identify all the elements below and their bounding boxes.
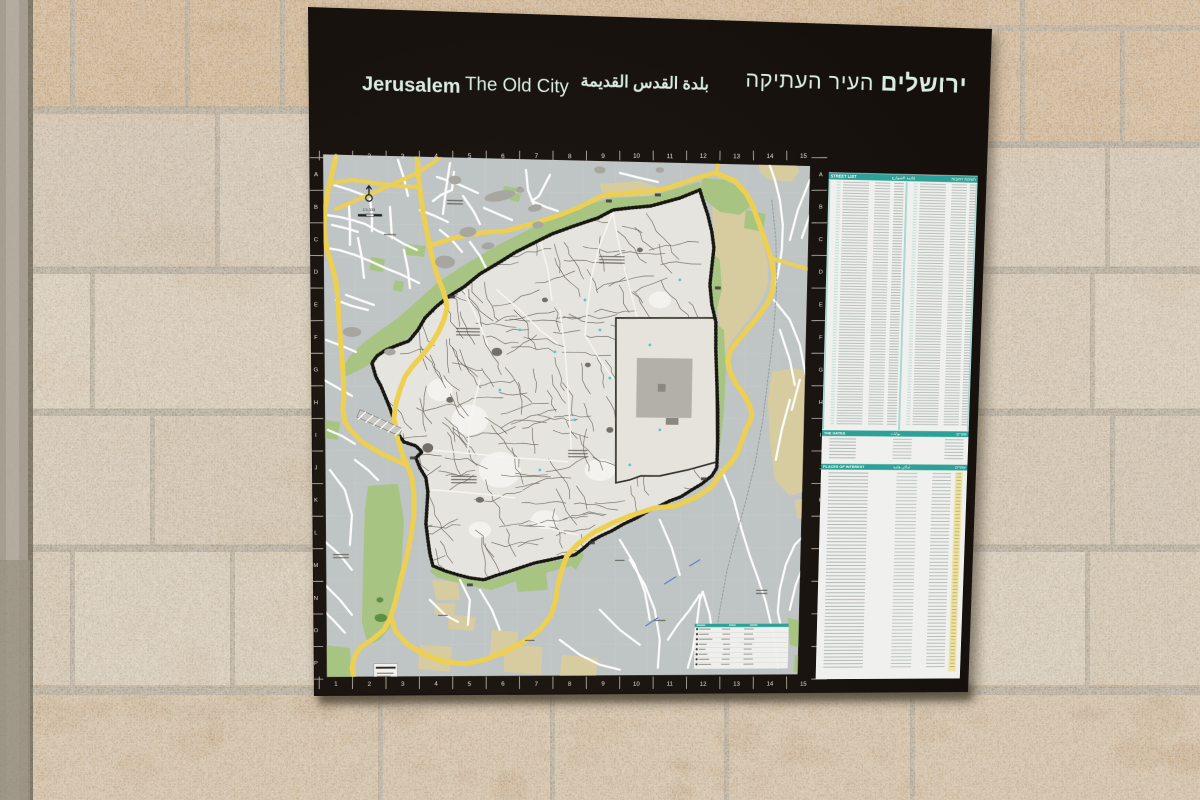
svg-text:1: 1 [334,153,338,160]
svg-text:F: F [819,334,823,341]
svg-text:D: D [314,269,319,276]
svg-text:أماكن هامة: أماكن هامة [893,464,910,470]
svg-text:11: 11 [667,681,674,687]
svg-text:14: 14 [766,153,773,160]
svg-text:15: 15 [800,153,807,160]
svg-text:PLACES OF INTEREST: PLACES OF INTEREST [823,464,865,469]
svg-text:3: 3 [401,153,405,160]
svg-text:5: 5 [468,153,472,160]
svg-text:2: 2 [368,153,372,160]
svg-text:4: 4 [434,681,438,687]
svg-text:14: 14 [766,681,773,687]
svg-text:12: 12 [700,153,707,160]
svg-text:6: 6 [501,681,505,687]
svg-text:E: E [314,302,318,309]
svg-text:6: 6 [501,153,505,160]
svg-text:10: 10 [633,153,640,160]
svg-text:אתרים: אתרים [955,465,966,470]
svg-text:C: C [314,236,319,243]
svg-text:G: G [819,367,824,373]
svg-text:STREET LIST: STREET LIST [831,174,857,179]
svg-text:1: 1 [334,681,338,687]
svg-text:3: 3 [401,681,405,687]
svg-text:B: B [819,204,823,211]
svg-text:N: N [314,595,318,601]
svg-text:M: M [313,562,318,568]
svg-text:9: 9 [601,153,605,160]
svg-text:7: 7 [534,681,538,687]
svg-text:قائمة الشوارع: قائمة الشوارع [892,175,916,180]
svg-text:13: 13 [733,153,740,160]
svg-text:12: 12 [700,681,707,687]
svg-text:11: 11 [667,153,674,160]
svg-text:שערים: שערים [956,432,966,437]
svg-text:13: 13 [733,681,740,687]
svg-text:C: C [819,237,824,244]
svg-text:F: F [314,334,318,341]
svg-text:7: 7 [534,153,538,160]
svg-text:4: 4 [434,153,438,160]
svg-text:H: H [819,400,823,406]
svg-text:10: 10 [633,681,640,687]
svg-text:G: G [314,367,319,374]
svg-text:15: 15 [800,681,807,687]
svg-text:D: D [819,269,824,276]
svg-text:B: B [314,204,318,211]
svg-text:E: E [819,302,823,309]
svg-text:The Old City: The Old City [465,73,569,97]
svg-text:K: K [314,497,318,504]
svg-text:O: O [314,628,319,634]
svg-text:9: 9 [601,681,605,687]
svg-text:8: 8 [568,681,572,687]
svg-text:H: H [314,399,318,406]
svg-text:רשימת רחובות: רשימת רחובות [951,177,976,182]
svg-text:بوابات: بوابات [891,431,901,436]
svg-text:1:1,333: 1:1,333 [363,208,375,212]
svg-text:Jerusalem: Jerusalem [362,72,461,97]
svg-text:THE GATES: THE GATES [824,431,846,436]
svg-text:J: J [315,465,318,472]
svg-text:8: 8 [568,153,572,160]
svg-text:2: 2 [368,681,372,687]
svg-text:5: 5 [468,681,472,687]
svg-text:P: P [314,660,318,666]
